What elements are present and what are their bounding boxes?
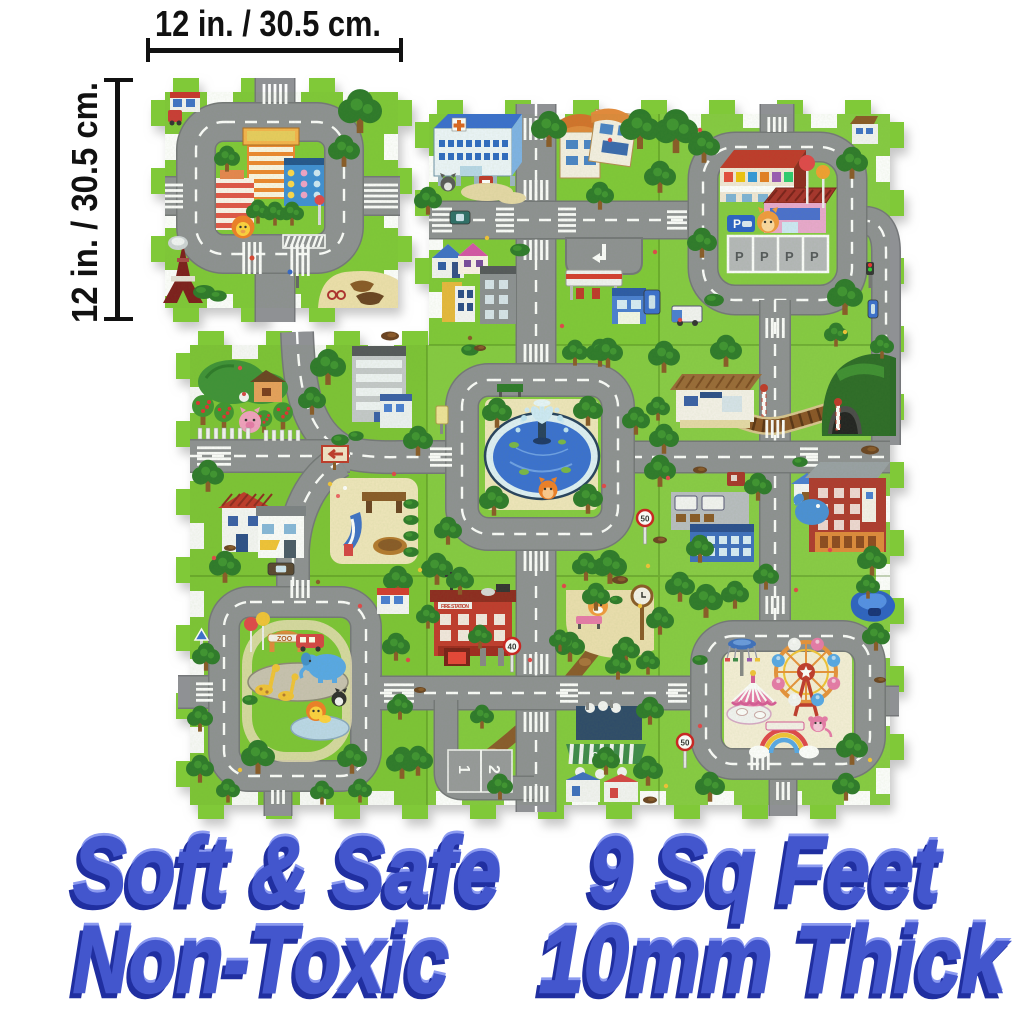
svg-text:12 in. / 30.5 cm.: 12 in. / 30.5 cm. xyxy=(155,3,381,44)
svg-text:Non-Toxic: Non-Toxic xyxy=(73,907,449,1013)
svg-text:12 in. / 30.5 cm.: 12 in. / 30.5 cm. xyxy=(64,82,105,323)
svg-text:10mm Thick: 10mm Thick xyxy=(539,907,1010,1013)
